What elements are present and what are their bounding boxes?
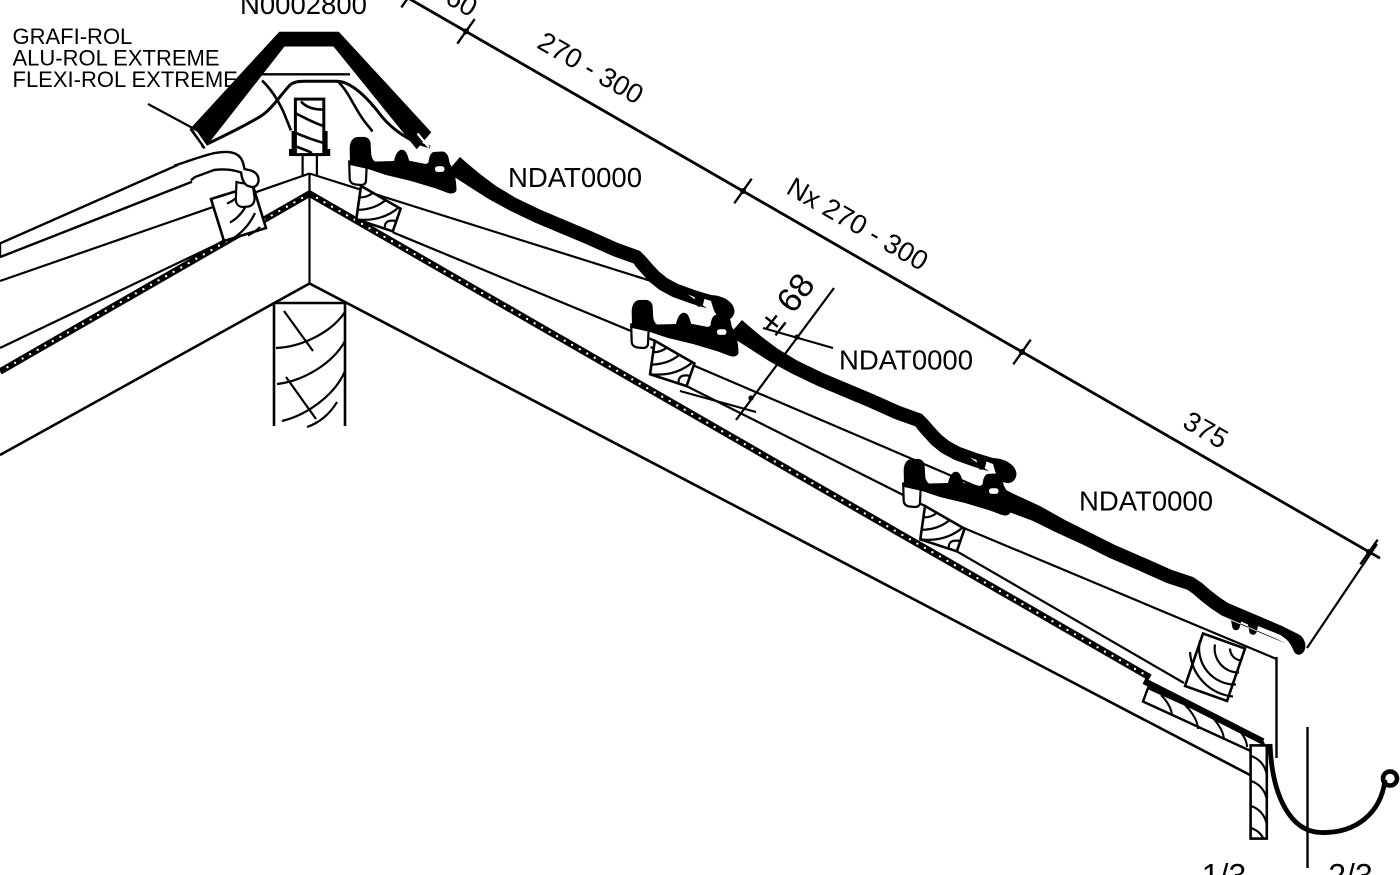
svg-text:1/3: 1/3: [1202, 858, 1246, 875]
svg-text:NDAT0000: NDAT0000: [508, 162, 642, 193]
svg-text:NDAT0000: NDAT0000: [1079, 486, 1213, 517]
svg-text:2/3: 2/3: [1328, 858, 1372, 875]
svg-text:NDAT0000: NDAT0000: [839, 345, 973, 376]
svg-text:FLEXI-ROL EXTREME: FLEXI-ROL EXTREME: [13, 67, 238, 92]
svg-text:N0002800: N0002800: [240, 0, 367, 20]
